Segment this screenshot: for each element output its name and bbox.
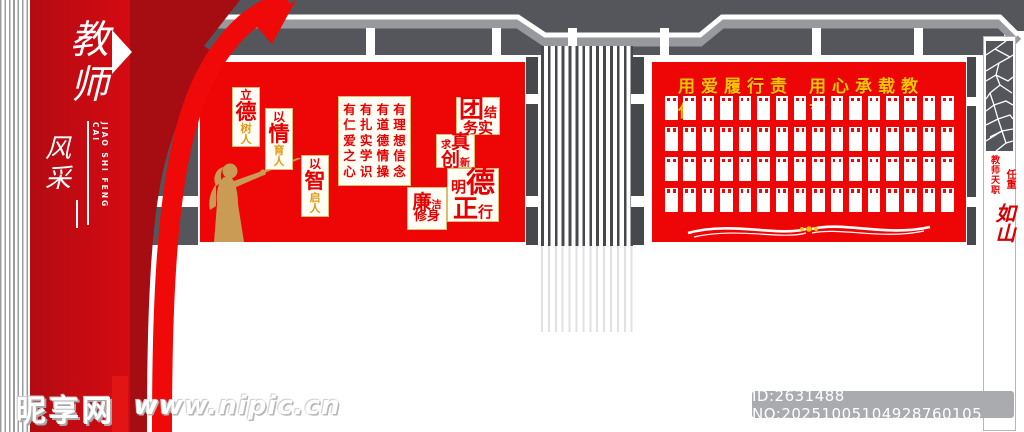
photo-frame	[904, 96, 917, 120]
photo-frame	[831, 188, 844, 212]
motto-char: 道	[377, 119, 390, 132]
plaque-char: 明	[451, 180, 466, 194]
pillar-notch	[524, 196, 540, 207]
photo-frame	[702, 127, 715, 151]
motto-char: 之	[343, 150, 356, 163]
red-banner-arcs	[0, 0, 300, 432]
photo-frame	[812, 157, 825, 181]
photo-frame	[757, 188, 770, 212]
strut	[492, 28, 501, 64]
photo-frame	[665, 157, 678, 181]
cracked-ice-pattern	[986, 41, 1013, 151]
strut	[660, 28, 669, 64]
photo-frame	[923, 188, 936, 212]
motto-char: 情	[377, 150, 390, 163]
photo-row	[665, 96, 954, 120]
photo-frame	[868, 127, 881, 151]
photo-frame	[739, 157, 752, 181]
plaque-tuanjie-wushi: 团 结 务 实	[456, 97, 500, 135]
photo-frame	[702, 157, 715, 181]
banner-char: 教	[70, 18, 109, 63]
motto-char: 操	[377, 166, 390, 179]
photo-frame	[720, 188, 733, 212]
plaque-char: 修	[414, 211, 427, 223]
photo-frame	[904, 188, 917, 212]
motto-char: 想	[393, 135, 406, 148]
plaque-char: 人	[310, 203, 321, 214]
motto-char: 仁	[343, 119, 356, 132]
right-pillar	[967, 57, 976, 245]
flourish-ornament	[682, 218, 936, 242]
photo-frame	[831, 127, 844, 151]
plaque-char: 智	[305, 170, 326, 191]
motto-char: 有	[377, 104, 390, 117]
photo-frame	[794, 96, 807, 120]
motto-char: 信	[393, 150, 406, 163]
motto-char: 念	[393, 166, 406, 179]
divider-pillar-right	[633, 57, 644, 245]
photo-frame	[923, 127, 936, 151]
photo-frame	[849, 188, 862, 212]
banner-char: 风	[45, 134, 71, 164]
strut	[914, 28, 923, 64]
photo-frame	[739, 127, 752, 151]
plaque-char: 身	[427, 211, 440, 223]
motto-column: 有理想信念	[393, 101, 406, 182]
photo-frame	[812, 188, 825, 212]
photo-frame	[683, 188, 696, 212]
photo-frame	[757, 157, 770, 181]
photo-frame	[812, 127, 825, 151]
vertical-motto-1: 教师天职	[988, 155, 1001, 195]
photo-frame	[941, 157, 954, 181]
plaque-char: 创	[441, 151, 460, 169]
motto-char: 扎	[360, 119, 373, 132]
photo-frame	[904, 127, 917, 151]
plaque-char: 德	[466, 169, 495, 197]
photo-frame	[683, 96, 696, 120]
plaque-char: 团	[459, 97, 484, 121]
plaque-mingde-zhengxing: 明 德 正 行	[447, 168, 499, 222]
motto-char: 识	[360, 166, 373, 179]
motto-column: 有扎实学识	[360, 101, 373, 182]
photo-frame	[868, 188, 881, 212]
slat-screen	[541, 46, 633, 246]
pillar-notch	[631, 94, 646, 104]
teacher-photo-panel: 用爱履行责任 用心承载教育	[652, 62, 966, 242]
photo-frame	[720, 157, 733, 181]
photo-frame	[776, 157, 789, 181]
image-id-badge: ID:2631488 NO:20251005104928760105	[752, 391, 1014, 418]
photo-frame	[720, 96, 733, 120]
banner-subtitle: JIAO SHI FENG CAI	[91, 122, 109, 232]
photo-grid	[665, 96, 954, 212]
photo-frame	[739, 188, 752, 212]
photo-frame	[776, 96, 789, 120]
photo-frame	[868, 96, 881, 120]
motto-char: 学	[360, 150, 373, 163]
photo-frame	[683, 127, 696, 151]
motto-char: 德	[377, 135, 390, 148]
pillar-notch	[631, 196, 646, 207]
plaque-qiuzhen-chuangxin: 求 真 创 新	[436, 134, 475, 168]
banner-title: 教 师	[70, 18, 109, 108]
motto-char: 有	[360, 104, 373, 117]
pillar-notch	[524, 94, 540, 104]
banner-char: 师	[70, 63, 109, 108]
motto-char: 理	[393, 119, 406, 132]
pillar-notch	[965, 197, 978, 207]
plaque-yizhi: 以 智 启 人	[301, 155, 329, 217]
photo-frame	[868, 157, 881, 181]
strut	[366, 28, 375, 64]
plaque-char: 实	[478, 121, 493, 135]
photo-frame	[702, 96, 715, 120]
motto-char: 有	[343, 104, 356, 117]
photo-frame	[794, 157, 807, 181]
photo-frame	[720, 127, 733, 151]
photo-frame	[683, 157, 696, 181]
motto-column: 有仁爱之心	[343, 101, 356, 182]
photo-frame	[776, 188, 789, 212]
photo-frame	[923, 96, 936, 120]
culture-wall-design: 立 德 树 人 以 情 育 人 以 智 启 人 有仁爱之心有扎实学识有道德情操有…	[0, 0, 1024, 432]
slat-reflection	[541, 246, 633, 332]
photo-frame	[739, 96, 752, 120]
watermark-site-url: www.nipic.cn	[134, 391, 340, 421]
photo-frame	[794, 127, 807, 151]
photo-frame	[886, 157, 899, 181]
photo-frame	[757, 127, 770, 151]
photo-frame	[702, 188, 715, 212]
watermark-site-name: 昵享网	[16, 386, 115, 430]
photo-row	[665, 127, 954, 151]
banner-divider-line	[87, 121, 89, 225]
photo-frame	[831, 96, 844, 120]
banner-divider-line-small	[76, 200, 78, 228]
photo-frame	[776, 127, 789, 151]
plaque-char: 正	[453, 197, 478, 221]
pillar-notch	[965, 97, 978, 106]
photo-frame	[941, 96, 954, 120]
plaque-lianjie-xiushen: 廉 洁 修 身	[407, 187, 447, 230]
plaque-char: 行	[478, 205, 493, 219]
photo-frame	[941, 188, 954, 212]
photo-frame	[665, 188, 678, 212]
photo-row	[665, 188, 954, 212]
photo-frame	[849, 157, 862, 181]
photo-frame	[923, 157, 936, 181]
strut	[812, 28, 821, 64]
motto-char: 心	[343, 166, 356, 179]
photo-frame	[757, 96, 770, 120]
calligraphy-rushan: 如山	[990, 203, 1019, 243]
motto-column: 有道德情操	[377, 101, 390, 182]
motto-char: 实	[360, 135, 373, 148]
banner-char: 采	[45, 164, 71, 194]
photo-frame	[904, 157, 917, 181]
right-end-column: 教师天职 任重 如山	[983, 36, 1016, 431]
motto-char: 爱	[343, 135, 356, 148]
photo-frame	[886, 188, 899, 212]
motto-plaque-grid: 有仁爱之心有扎实学识有道德情操有理想信念	[338, 96, 411, 186]
photo-frame	[941, 127, 954, 151]
divider-pillar-left	[526, 57, 538, 245]
photo-frame	[665, 96, 678, 120]
photo-row	[665, 157, 954, 181]
photo-frame	[831, 157, 844, 181]
photo-frame	[794, 188, 807, 212]
photo-frame	[849, 96, 862, 120]
photo-frame	[665, 127, 678, 151]
photo-frame	[812, 96, 825, 120]
motto-char: 有	[393, 104, 406, 117]
photo-frame	[886, 96, 899, 120]
banner-sub-title: 风 采	[45, 134, 71, 194]
vertical-motto-2: 任重	[1002, 169, 1017, 189]
photo-frame	[886, 127, 899, 151]
photo-frame	[849, 127, 862, 151]
